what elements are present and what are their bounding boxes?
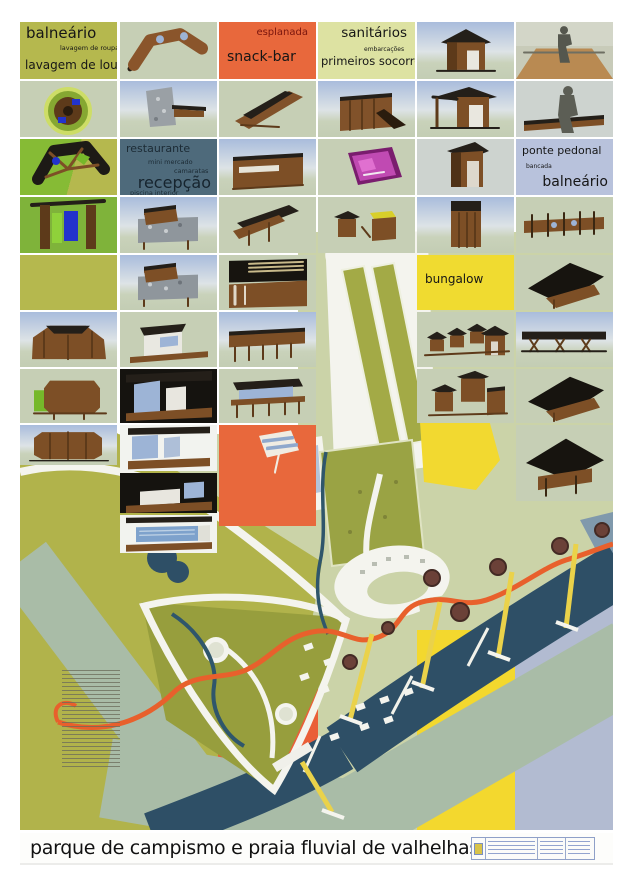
render-hut	[417, 22, 514, 79]
arc-unit	[404, 555, 409, 559]
render-persondeck	[516, 22, 613, 79]
plan-legend	[62, 670, 120, 770]
render-stonelong	[120, 197, 217, 253]
render-pool	[120, 515, 217, 553]
render-twohuts	[318, 197, 415, 253]
render-bed	[120, 473, 217, 513]
render-darkroof	[516, 369, 613, 423]
pond	[167, 561, 189, 583]
field-shrub	[383, 515, 387, 519]
render-intglass	[120, 369, 217, 423]
render-bungalowrow	[417, 312, 514, 367]
arc-unit	[386, 557, 391, 561]
title-block-stamp	[471, 837, 595, 860]
label-block-b4: restaurantemini mercadocamaratasrecepção…	[120, 139, 217, 195]
render-slope	[219, 81, 316, 137]
render-stone	[120, 81, 217, 137]
render-sketch	[219, 425, 316, 526]
render-greenint	[20, 197, 117, 253]
label-text: sanitários	[318, 26, 407, 40]
label-text: bancada	[526, 164, 613, 170]
field-shrub	[394, 480, 398, 484]
render-darkroof	[516, 255, 613, 310]
label-text: bungalow	[425, 273, 514, 286]
stamp-text-cell	[538, 838, 566, 859]
stamp-text-cell	[566, 838, 592, 859]
arc-unit	[372, 562, 377, 566]
render-magenta	[318, 139, 415, 195]
stamp-logo-cell	[472, 838, 486, 859]
render-stiltlong	[219, 312, 316, 367]
field-shrub	[358, 490, 362, 494]
render-curvedplan	[120, 22, 217, 79]
title-strip: parque de campismo e praia fluvial de va…	[20, 833, 613, 865]
label-text: ponte pedonal	[522, 145, 613, 157]
field-shrub	[348, 530, 352, 534]
label-text: lavagem de roupa	[60, 45, 117, 52]
label-block-b6: bungalow	[417, 255, 514, 310]
label-text: embarcações	[364, 47, 415, 53]
render-person	[516, 81, 613, 137]
label-text: balneário	[26, 26, 117, 42]
render-wheel	[20, 139, 117, 195]
stamp-emblem-icon	[474, 843, 483, 855]
render-bungalowcluster	[417, 369, 514, 423]
label-block-b3: sanitáriosembarcaçõesprimeiros socorros	[318, 22, 415, 79]
render-cylgreen	[20, 369, 117, 423]
render-blank	[20, 255, 117, 310]
render-circplan	[20, 81, 117, 137]
render-tallhut	[417, 139, 514, 195]
arc-unit	[420, 559, 425, 563]
label-block-b2: esplanadasnack-bar	[219, 22, 316, 79]
render-box	[318, 81, 415, 137]
render-ramp	[219, 197, 316, 253]
label-text: balneário	[516, 175, 608, 190]
render-bath	[120, 425, 217, 471]
stamp-text-cell	[486, 838, 538, 859]
render-intcanopy	[219, 255, 316, 310]
render-curve	[20, 312, 117, 367]
label-block-b5: ponte pedonalbancadabalneário	[516, 139, 613, 195]
label-text: lavagem de louça	[25, 59, 117, 72]
render-bridgeelev	[516, 312, 613, 367]
arc-unit	[360, 570, 365, 574]
render-towerhut	[417, 197, 514, 253]
render-bridgeroof	[516, 425, 613, 501]
render-cyl	[20, 425, 117, 465]
label-text: restaurante	[126, 143, 217, 155]
roundabout	[279, 707, 293, 721]
presentation-board: balneáriolavagem de roupalavagem de louç…	[20, 22, 613, 867]
label-text: mini mercado	[148, 159, 217, 166]
render-longbldg	[219, 139, 316, 195]
render-stiltpav	[219, 369, 316, 423]
render-planwalk	[516, 197, 613, 253]
render-stonelong	[120, 255, 217, 310]
render-hutporch	[417, 81, 514, 137]
label-block-b1: balneáriolavagem de roupalavagem de louç…	[20, 22, 117, 79]
label-text: esplanada	[219, 28, 308, 39]
poster-title: parque de campismo e praia fluvial de va…	[30, 837, 479, 859]
poster-page: balneáriolavagem de roupalavagem de louç…	[0, 0, 638, 882]
label-text: snack-bar	[227, 50, 316, 65]
label-text: primeiros socorros	[321, 55, 415, 67]
render-whitebldg	[120, 312, 217, 367]
